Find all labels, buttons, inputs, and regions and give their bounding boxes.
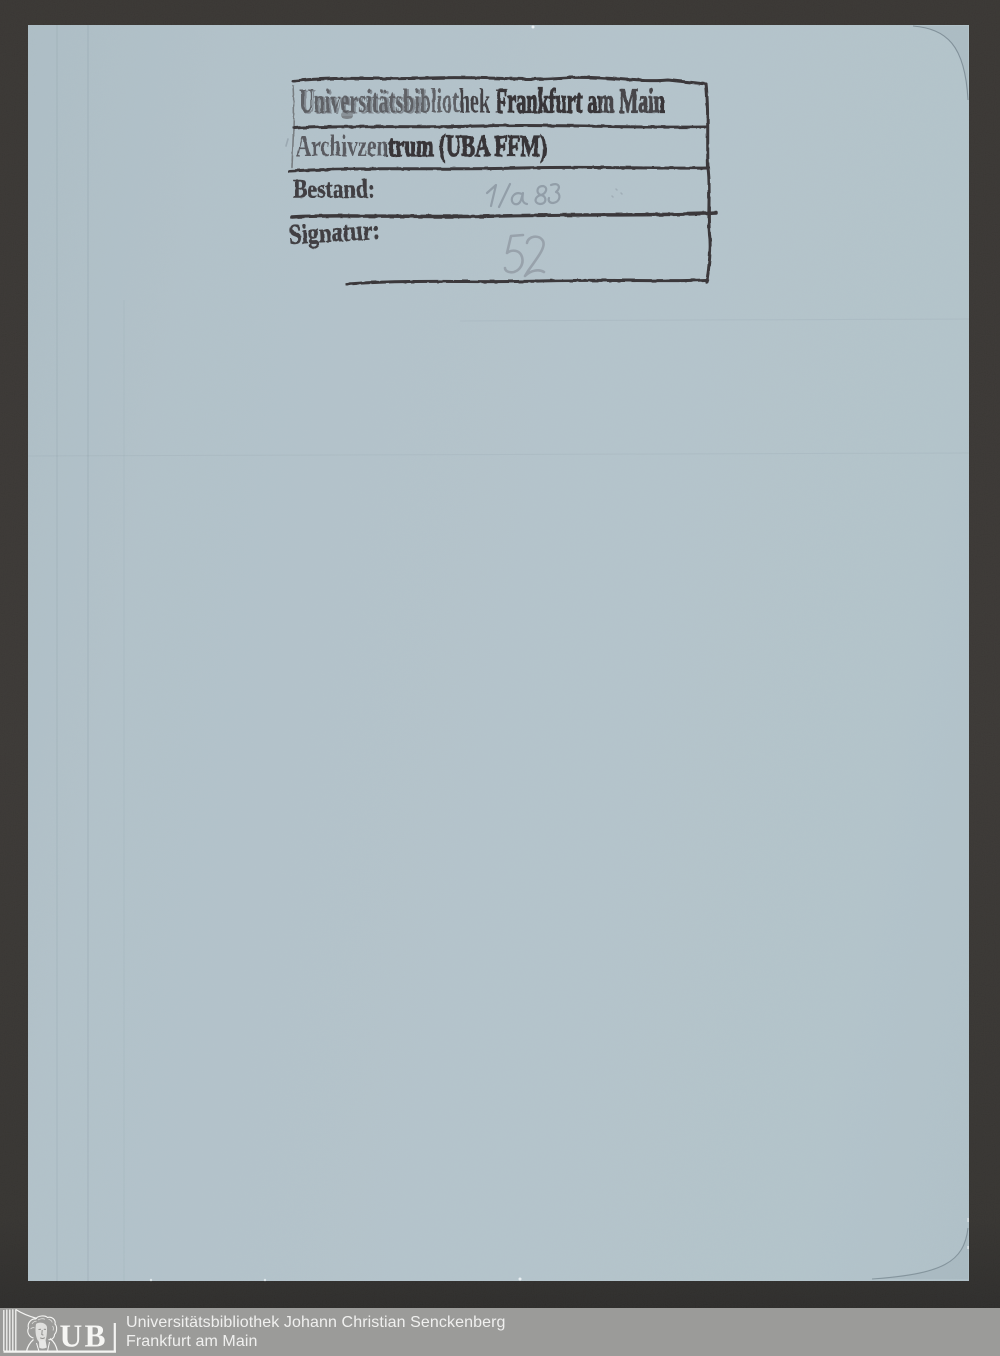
svg-text:Bestand:: Bestand: <box>293 174 375 204</box>
svg-text:Signatur:: Signatur: <box>288 215 381 251</box>
svg-text:UB: UB <box>60 1319 106 1354</box>
